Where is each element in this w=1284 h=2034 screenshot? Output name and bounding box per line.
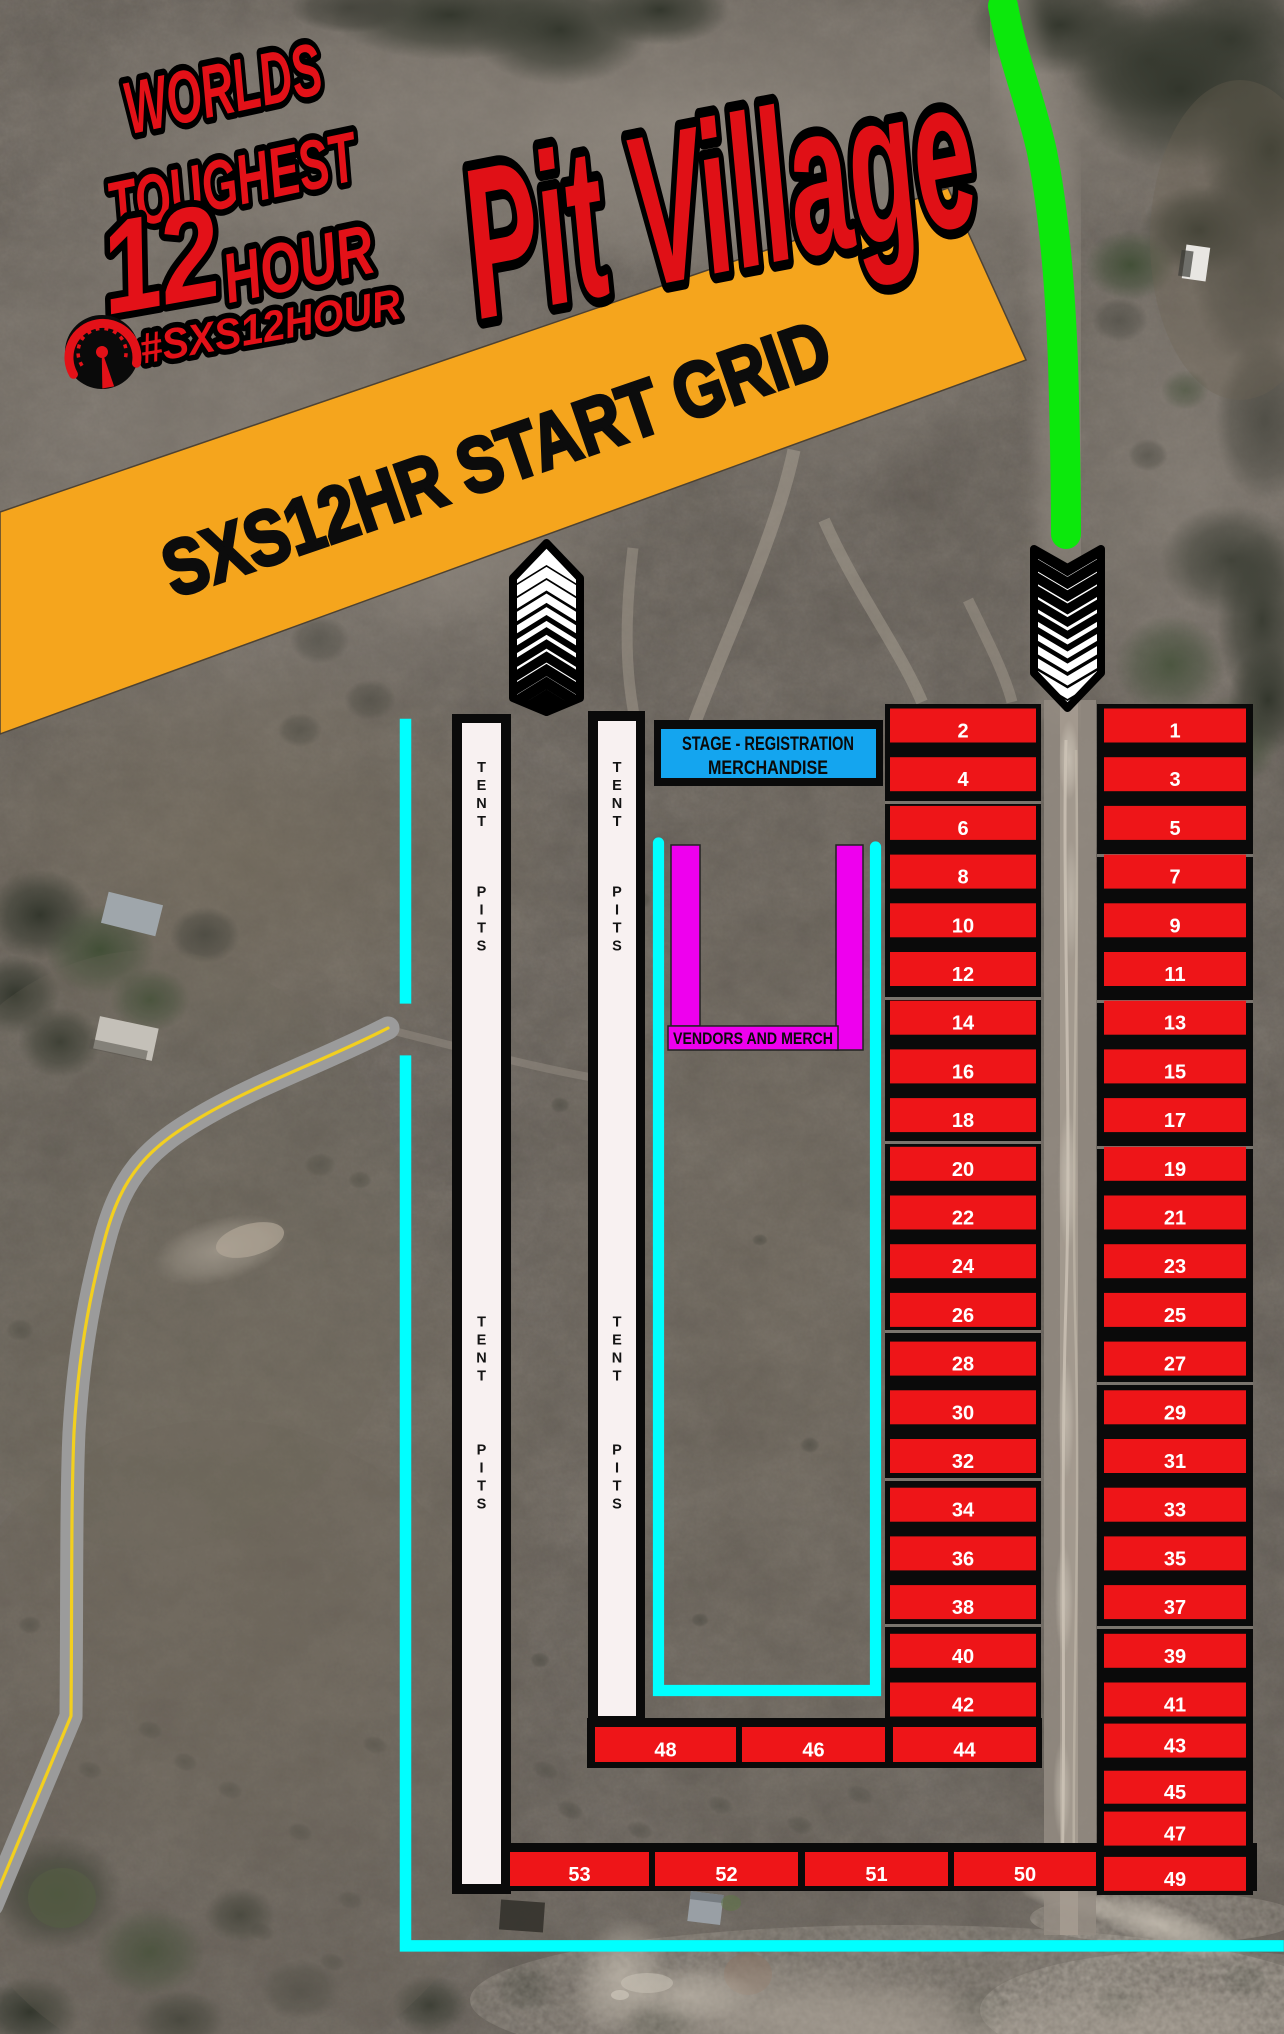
svg-text:STAGE - REGISTRATION: STAGE - REGISTRATION <box>682 734 854 755</box>
svg-text:33: 33 <box>1164 1500 1186 1522</box>
svg-text:39: 39 <box>1164 1646 1186 1668</box>
svg-text:51: 51 <box>865 1864 887 1886</box>
svg-text:10: 10 <box>952 915 974 937</box>
svg-text:1: 1 <box>1169 721 1180 743</box>
svg-text:44: 44 <box>953 1740 976 1762</box>
svg-text:I: I <box>615 1461 619 1477</box>
svg-text:40: 40 <box>952 1646 974 1668</box>
svg-text:52: 52 <box>715 1864 737 1886</box>
svg-text:6: 6 <box>957 818 968 840</box>
svg-text:41: 41 <box>1164 1695 1186 1717</box>
svg-text:E: E <box>477 778 487 794</box>
svg-text:P: P <box>612 885 622 901</box>
svg-text:5: 5 <box>1169 818 1180 840</box>
svg-text:31: 31 <box>1164 1451 1186 1473</box>
svg-text:N: N <box>476 1351 486 1367</box>
svg-text:46: 46 <box>802 1740 824 1762</box>
svg-text:MERCHANDISE: MERCHANDISE <box>708 758 828 779</box>
svg-text:E: E <box>612 1333 622 1349</box>
svg-text:9: 9 <box>1169 915 1180 937</box>
svg-text:3: 3 <box>1169 769 1180 791</box>
svg-text:2: 2 <box>957 721 968 743</box>
svg-text:P: P <box>477 1443 487 1459</box>
svg-text:N: N <box>476 796 486 812</box>
svg-text:23: 23 <box>1164 1256 1186 1278</box>
svg-text:24: 24 <box>952 1256 975 1278</box>
svg-text:T: T <box>477 814 486 830</box>
svg-text:T: T <box>613 921 622 937</box>
svg-text:47: 47 <box>1164 1824 1186 1846</box>
svg-text:S: S <box>612 1497 622 1513</box>
svg-text:T: T <box>477 760 486 776</box>
svg-text:53: 53 <box>568 1864 590 1886</box>
svg-text:T: T <box>477 1315 486 1331</box>
svg-text:N: N <box>612 1351 622 1367</box>
svg-text:19: 19 <box>1164 1159 1186 1181</box>
svg-text:VENDORS AND MERCH: VENDORS AND MERCH <box>673 1029 833 1048</box>
svg-text:17: 17 <box>1164 1110 1186 1132</box>
svg-text:30: 30 <box>952 1402 974 1424</box>
svg-text:21: 21 <box>1164 1208 1186 1230</box>
svg-text:50: 50 <box>1014 1864 1036 1886</box>
svg-text:32: 32 <box>952 1451 974 1473</box>
svg-text:26: 26 <box>952 1305 974 1327</box>
svg-text:T: T <box>477 921 486 937</box>
svg-text:T: T <box>613 1479 622 1495</box>
svg-text:45: 45 <box>1164 1782 1186 1804</box>
svg-text:N: N <box>612 796 622 812</box>
svg-text:P: P <box>477 885 487 901</box>
svg-text:12: 12 <box>952 964 974 986</box>
svg-text:25: 25 <box>1164 1305 1186 1327</box>
svg-text:I: I <box>615 903 619 919</box>
svg-text:43: 43 <box>1164 1736 1186 1758</box>
svg-text:48: 48 <box>654 1740 676 1762</box>
svg-text:P: P <box>612 1443 622 1459</box>
svg-text:37: 37 <box>1164 1597 1186 1619</box>
svg-text:13: 13 <box>1164 1013 1186 1035</box>
svg-text:T: T <box>613 814 622 830</box>
svg-text:T: T <box>613 1369 622 1385</box>
svg-text:7: 7 <box>1169 867 1180 889</box>
svg-text:36: 36 <box>952 1548 974 1570</box>
svg-text:S: S <box>477 1497 487 1513</box>
svg-text:T: T <box>477 1479 486 1495</box>
svg-text:T: T <box>477 1369 486 1385</box>
svg-text:20: 20 <box>952 1159 974 1181</box>
svg-text:I: I <box>479 1461 483 1477</box>
svg-text:4: 4 <box>957 769 969 791</box>
svg-text:27: 27 <box>1164 1354 1186 1376</box>
svg-text:11: 11 <box>1164 964 1185 986</box>
svg-text:8: 8 <box>957 867 968 889</box>
svg-text:15: 15 <box>1164 1061 1186 1083</box>
svg-text:29: 29 <box>1164 1402 1186 1424</box>
svg-text:42: 42 <box>952 1695 974 1717</box>
svg-text:35: 35 <box>1164 1548 1186 1570</box>
svg-text:T: T <box>613 1315 622 1331</box>
svg-text:38: 38 <box>952 1597 974 1619</box>
svg-text:14: 14 <box>952 1013 975 1035</box>
svg-text:E: E <box>477 1333 487 1349</box>
svg-text:S: S <box>612 939 622 955</box>
svg-text:S: S <box>477 939 487 955</box>
svg-text:T: T <box>613 760 622 776</box>
svg-text:16: 16 <box>952 1061 974 1083</box>
svg-text:I: I <box>479 903 483 919</box>
svg-text:18: 18 <box>952 1110 974 1132</box>
svg-text:28: 28 <box>952 1354 974 1376</box>
svg-text:34: 34 <box>952 1500 975 1522</box>
svg-text:49: 49 <box>1164 1869 1186 1891</box>
svg-text:E: E <box>612 778 622 794</box>
svg-text:22: 22 <box>952 1208 974 1230</box>
